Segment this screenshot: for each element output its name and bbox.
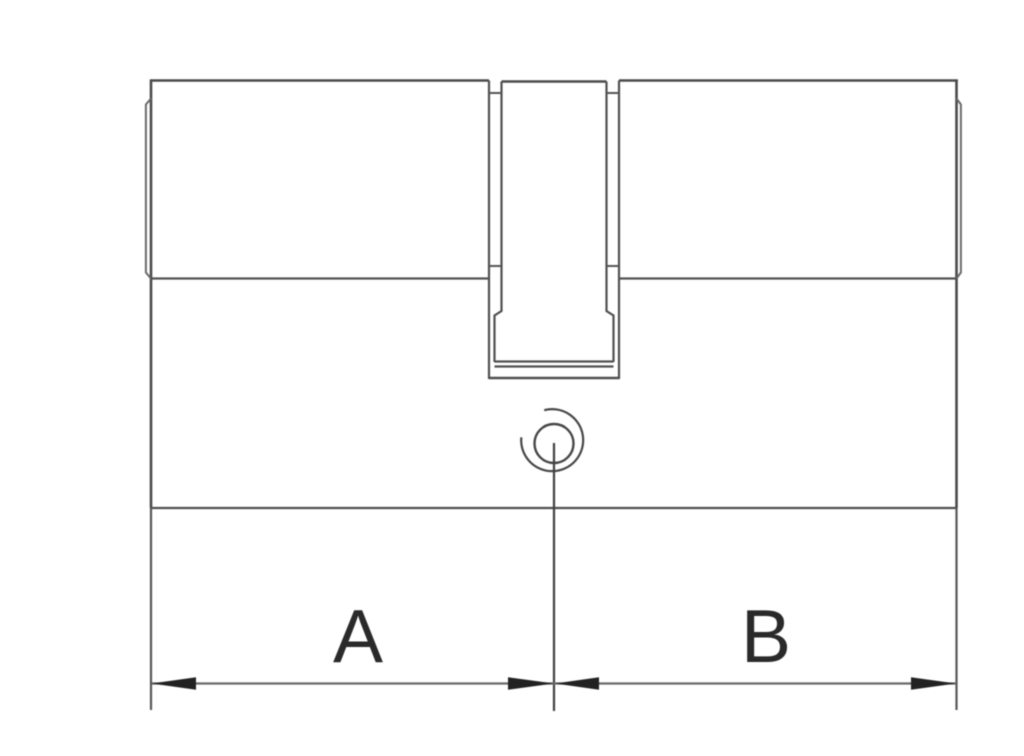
svg-text:B: B [741, 594, 791, 678]
svg-text:A: A [333, 594, 383, 678]
